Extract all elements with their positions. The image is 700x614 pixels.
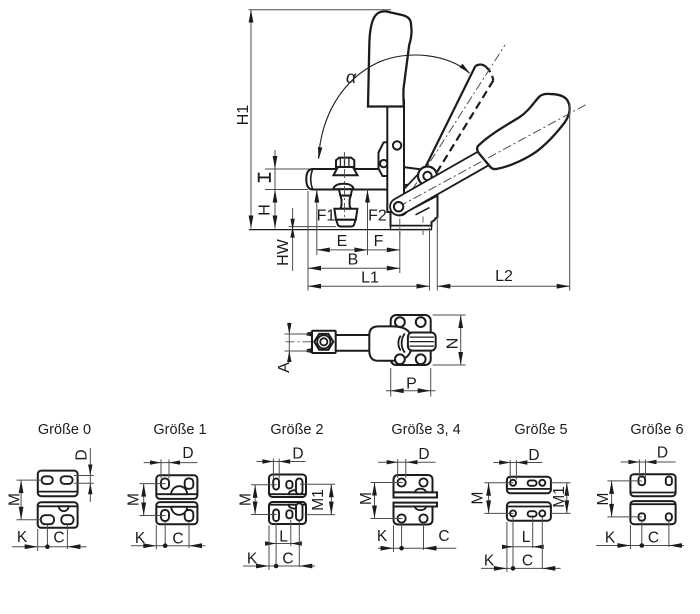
svg-text:L: L: [522, 529, 531, 546]
svg-text:L2: L2: [495, 268, 513, 285]
svg-text:F2: F2: [368, 208, 387, 225]
svg-text:Größe 1: Größe 1: [153, 422, 206, 438]
svg-text:F1: F1: [317, 208, 336, 225]
svg-text:C: C: [172, 531, 183, 548]
svg-text:P: P: [406, 376, 417, 393]
svg-text:α: α: [346, 67, 357, 87]
svg-text:K: K: [484, 553, 495, 570]
svg-text:C: C: [522, 553, 533, 570]
svg-text:B: B: [348, 252, 359, 269]
svg-text:M: M: [470, 492, 487, 505]
svg-text:L: L: [279, 529, 288, 546]
svg-text:C: C: [53, 530, 64, 547]
svg-text:Größe 3, 4: Größe 3, 4: [391, 422, 460, 438]
svg-text:H1: H1: [235, 105, 252, 126]
svg-text:D: D: [74, 449, 91, 460]
svg-text:M: M: [7, 493, 24, 506]
svg-text:D: D: [182, 445, 193, 462]
svg-text:M: M: [358, 492, 375, 505]
svg-text:E: E: [337, 233, 348, 250]
svg-text:K: K: [17, 529, 28, 546]
svg-text:D: D: [528, 447, 539, 464]
svg-text:K: K: [605, 530, 616, 547]
svg-text:H: H: [257, 204, 274, 216]
svg-text:M1: M1: [551, 486, 568, 508]
svg-text:M: M: [238, 493, 255, 506]
svg-text:C: C: [648, 530, 659, 547]
svg-text:M: M: [595, 493, 612, 506]
svg-text:M1: M1: [310, 489, 327, 511]
svg-text:D: D: [292, 446, 303, 463]
svg-text:HW: HW: [275, 238, 292, 266]
svg-text:D: D: [418, 446, 429, 463]
svg-text:L1: L1: [361, 270, 379, 287]
svg-text:Größe 5: Größe 5: [514, 422, 567, 438]
svg-text:Größe 2: Größe 2: [270, 422, 323, 438]
svg-text:C: C: [438, 528, 449, 545]
svg-text:D: D: [657, 445, 668, 462]
svg-text:F: F: [374, 233, 384, 250]
svg-text:K: K: [377, 528, 388, 545]
svg-text:Größe 6: Größe 6: [630, 422, 683, 438]
svg-text:C: C: [282, 551, 293, 568]
svg-text:A: A: [276, 362, 293, 373]
svg-text:Größe 0: Größe 0: [38, 422, 91, 438]
svg-text:N: N: [445, 338, 462, 350]
svg-text:K: K: [135, 530, 146, 547]
svg-text:K: K: [247, 551, 258, 568]
svg-text:M: M: [126, 493, 143, 506]
